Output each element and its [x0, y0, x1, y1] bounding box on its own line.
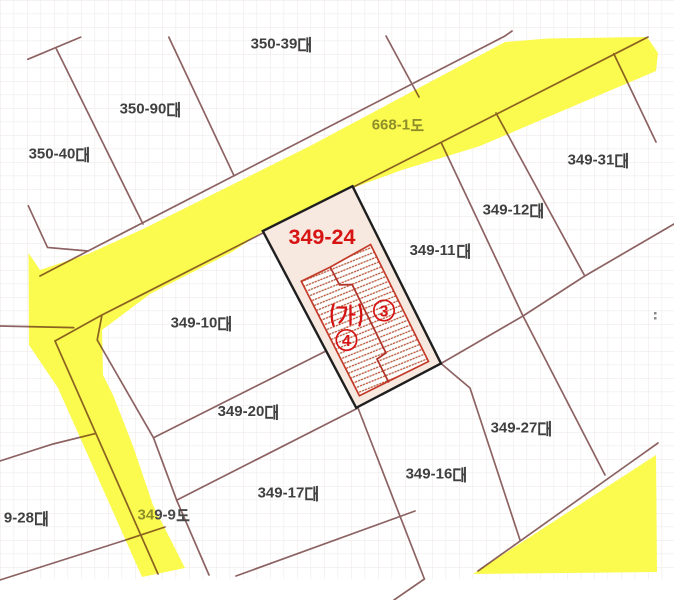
svg-text:349-24: 349-24 — [289, 225, 356, 249]
svg-text:350-40: 350-40 — [29, 145, 76, 162]
svg-text:349-20: 349-20 — [218, 403, 265, 420]
svg-text:349-11: 349-11 — [410, 242, 456, 259]
svg-text:349-27: 349-27 — [491, 419, 538, 436]
svg-text:349-17: 349-17 — [258, 484, 305, 501]
svg-text:350-90: 350-90 — [120, 100, 167, 117]
svg-text:9-28: 9-28 — [4, 509, 34, 526]
svg-text:349-10: 349-10 — [171, 314, 218, 331]
svg-text:9-9: 9-9 — [154, 507, 176, 524]
svg-text:349-31: 349-31 — [568, 151, 615, 168]
svg-text:4: 4 — [342, 333, 351, 350]
svg-text:34: 34 — [138, 507, 155, 524]
svg-text:668-1: 668-1 — [372, 116, 410, 133]
svg-text:349-16: 349-16 — [406, 465, 453, 482]
svg-text:349-12: 349-12 — [483, 201, 530, 218]
svg-text:3: 3 — [380, 304, 389, 321]
svg-text:350-39: 350-39 — [251, 35, 298, 52]
